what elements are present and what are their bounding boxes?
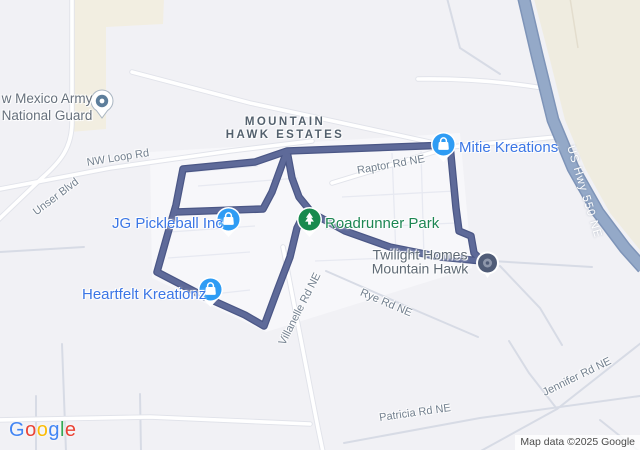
google-logo[interactable]: Google: [9, 419, 77, 442]
mitie-kreations-pin[interactable]: [430, 131, 457, 168]
destination-circle-icon: [475, 251, 500, 278]
roadrunner-park-pin[interactable]: [296, 206, 323, 243]
map-viewport[interactable]: MOUNTAIN HAWK ESTATES w Mexico Army Nati…: [0, 0, 640, 450]
destination-marker[interactable]: [475, 251, 500, 283]
heartfelt-kreationz-label[interactable]: Heartfelt Kreationz: [82, 286, 206, 303]
place-dot-pin-icon: [90, 89, 114, 119]
mitie-kreations-label[interactable]: Mitie Kreations: [459, 139, 558, 156]
map-data-attribution: Map data ©2025 Google: [515, 435, 640, 450]
shopping-bag-pin-icon: [430, 131, 457, 163]
jg-pickleball-label[interactable]: JG Pickleball Inc: [112, 215, 223, 232]
area-label-mountain-hawk-estates: MOUNTAIN HAWK ESTATES: [226, 116, 344, 142]
twilight-homes-label[interactable]: Twilight Homes Mountain Hawk: [372, 249, 469, 276]
roadrunner-park-label[interactable]: Roadrunner Park: [325, 215, 439, 232]
national-guard-pin[interactable]: [90, 89, 114, 124]
park-tree-pin-icon: [296, 206, 323, 238]
national-guard-label[interactable]: w Mexico Army National Guard: [2, 90, 93, 124]
